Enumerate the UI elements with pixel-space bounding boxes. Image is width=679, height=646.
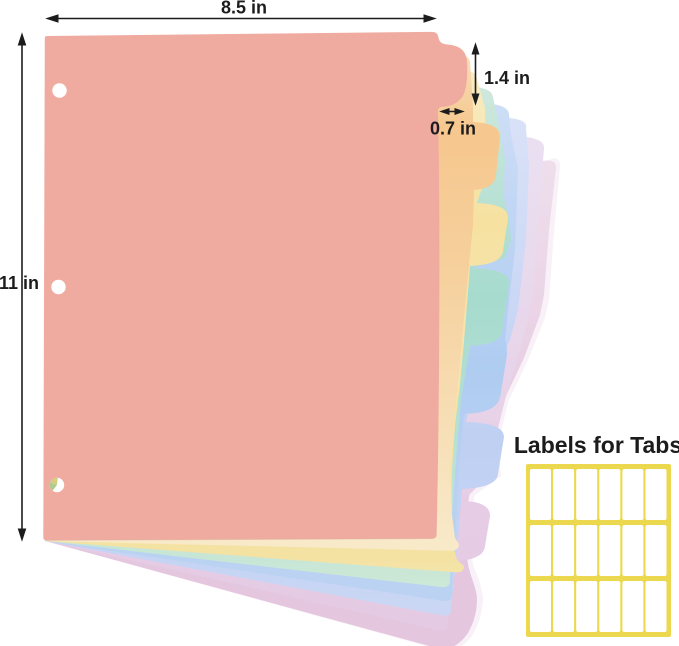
svg-text:8.5 in: 8.5 in xyxy=(221,0,267,18)
svg-text:0.7 in: 0.7 in xyxy=(430,119,476,139)
svg-text:Labels for Tabs: Labels for Tabs xyxy=(514,432,679,458)
svg-text:1.4 in: 1.4 in xyxy=(484,68,530,88)
svg-text:11 in: 11 in xyxy=(0,273,39,293)
